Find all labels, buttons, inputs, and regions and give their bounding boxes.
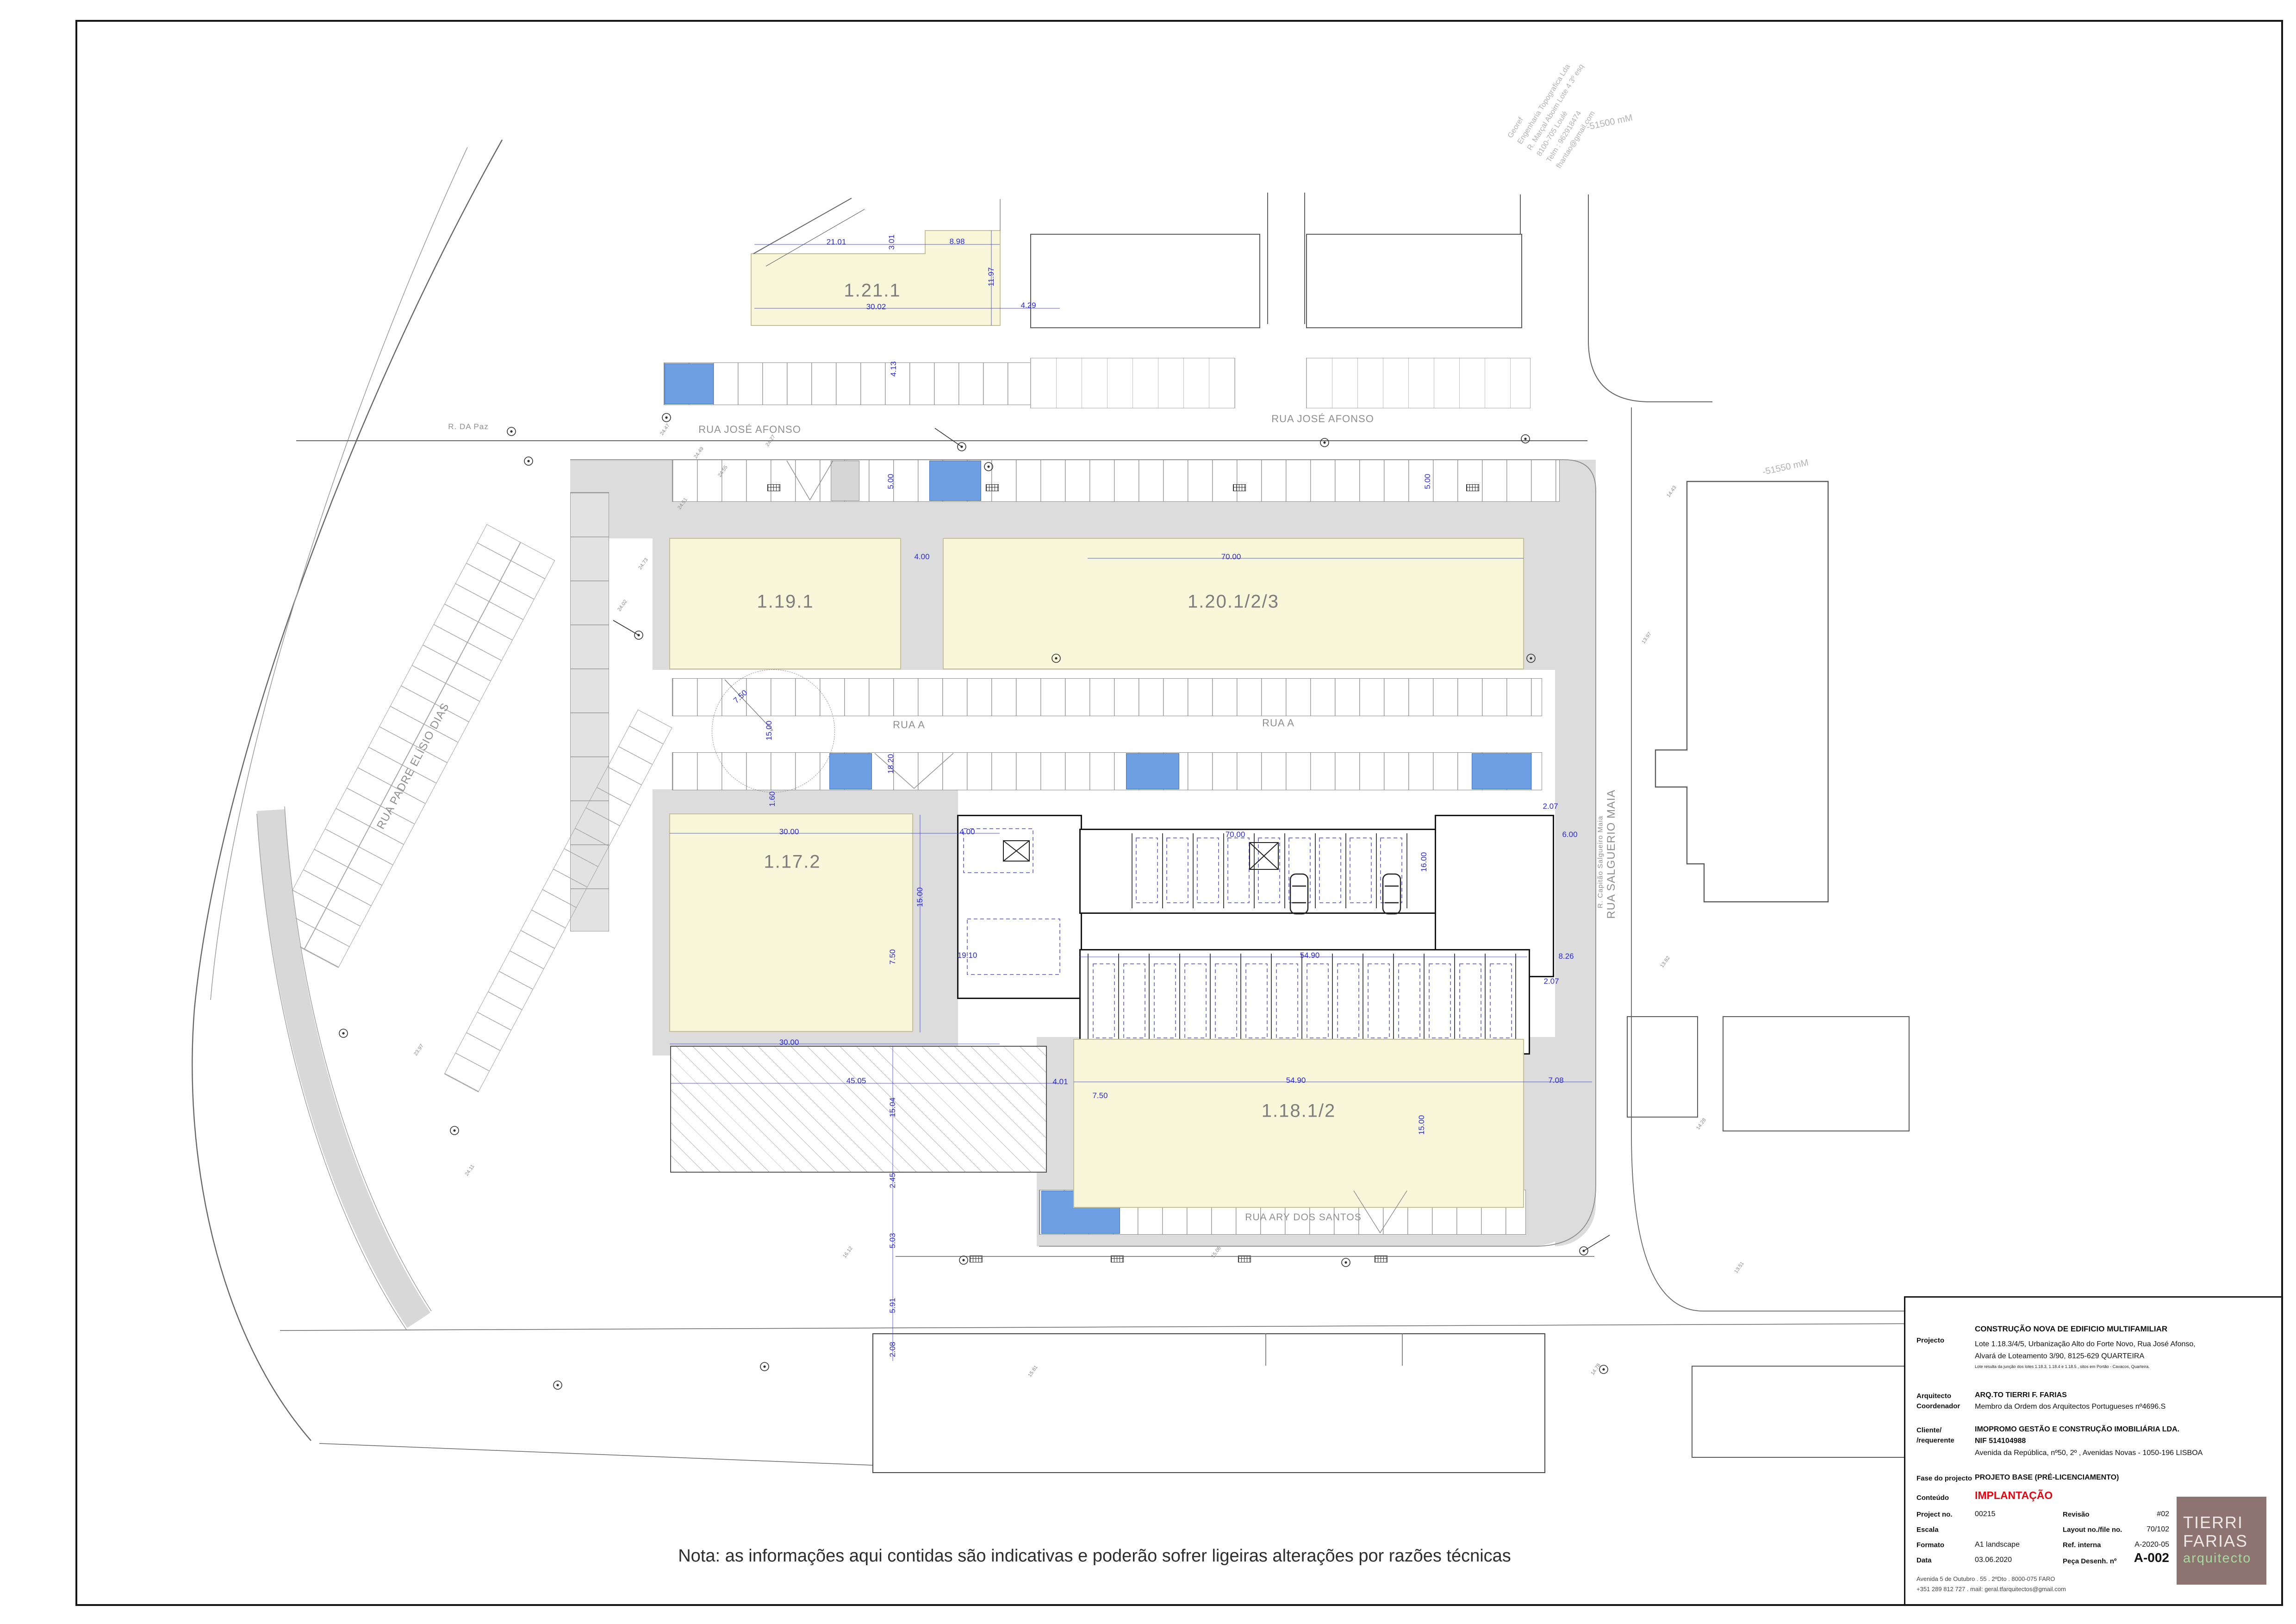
dimension-label: 2.07 <box>1543 977 1559 986</box>
dimension-label: 7.50 <box>1092 1091 1108 1100</box>
paving-left-mid-band <box>653 789 958 1056</box>
dimension-label: 70.00 <box>1221 552 1241 562</box>
curb-grate <box>1233 484 1246 491</box>
drawing-number: A-002 <box>2116 1550 2169 1565</box>
phase-value: PROJETO BASE (PRÉ-LICENCIAMENTO) <box>1975 1474 2119 1482</box>
architect-detail: Membro da Ordem dos Arquitectos Portugue… <box>1975 1403 2165 1411</box>
field-label: Project no. <box>1916 1511 1953 1518</box>
blue-parking-stall <box>829 753 872 789</box>
existing-building <box>1723 1016 1910 1131</box>
field-label: Escala <box>1916 1526 1939 1534</box>
field-label: Layout no./file no. <box>2063 1526 2122 1534</box>
field-value: #02 <box>2128 1510 2169 1518</box>
dimension-label: 2.07 <box>1543 802 1558 811</box>
blue-parking-stall <box>1041 1191 1120 1234</box>
field-value: 03.06.2020 <box>1975 1556 2012 1564</box>
logo-line: arquitecto <box>2183 1551 2266 1566</box>
dimension-label: 5.00 <box>886 474 896 489</box>
project-line1: Lote 1.18.3/4/5, Urbanização Alto do For… <box>1975 1340 2196 1349</box>
dimension-label: 3.01 <box>887 234 896 250</box>
field-value: 70/102 <box>2128 1525 2169 1534</box>
street-label: RUA A <box>1262 717 1294 729</box>
building-west-wing <box>957 815 1082 999</box>
architect-label2: Coordenador <box>1916 1402 1960 1410</box>
blue-parking-stall <box>1472 753 1531 789</box>
dimension-label: 2.08 <box>888 1342 897 1357</box>
disclaimer-note: Nota: as informações aqui contidas são i… <box>629 1546 1560 1566</box>
gray-parking-stall <box>831 461 859 501</box>
stair-tower <box>1448 1052 1483 1094</box>
existing-building <box>1030 234 1260 328</box>
client-label2: /requerente <box>1916 1437 1954 1444</box>
project-small-note: Lote resulta da junção dos lotes 1.18.3,… <box>1975 1364 2150 1369</box>
lot-label: 1.17.2 <box>764 852 821 873</box>
paving-top-band <box>570 501 1596 538</box>
client-nif: NIF 514104988 <box>1975 1437 2026 1445</box>
field-label: Peça Desenh. nº <box>2063 1557 2116 1565</box>
dimension-label: 54.90 <box>1286 1076 1306 1085</box>
dimension-label: 2.45 <box>888 1173 897 1188</box>
dimension-label: 30.00 <box>779 1038 799 1047</box>
dimension-label: 7.08 <box>1548 1076 1563 1085</box>
street-label: RUA ARY DOS SANTOS <box>1245 1212 1361 1223</box>
dimension-label: 15.00 <box>765 721 774 741</box>
office-contact: +351 289 812 727 . mail: geral.tfarquite… <box>1916 1586 2066 1593</box>
field-label: Revisão <box>2063 1511 2090 1518</box>
curb-grate <box>1466 484 1479 491</box>
garage-stall-dividers-north <box>1132 833 1409 908</box>
curb-grate <box>1238 1255 1251 1262</box>
dimension-label: 70.00 <box>1226 830 1245 839</box>
field-label: Formato <box>1916 1541 1944 1549</box>
curb-grate <box>1375 1255 1388 1262</box>
street-label: RUA JOSÉ AFONSO <box>1271 413 1374 425</box>
street-label: RUA SALGUERIO MAIA <box>1605 789 1618 918</box>
parking-area-north-a <box>1030 358 1235 408</box>
curb-grate <box>970 1255 983 1262</box>
office-address: Avenida 5 de Outubro . 55 . 2ºDto . 8000… <box>1916 1575 2055 1582</box>
street-label: R. DA Paz <box>448 422 488 431</box>
dimension-label: 8.98 <box>949 237 964 246</box>
client-address: Avenida da República, nº50, 2º , Avenida… <box>1975 1449 2203 1457</box>
title-block: Projecto CONSTRUÇÃO NOVA DE EDIFICIO MUL… <box>1904 1296 2283 1605</box>
existing-building <box>1306 234 1522 328</box>
content-label: Conteúdo <box>1916 1494 1949 1502</box>
stair-tower <box>1170 1052 1205 1094</box>
architect-label: Arquitecto <box>1916 1392 1951 1400</box>
dimension-label: 5.00 <box>1423 474 1432 489</box>
dimension-label: 18.20 <box>886 754 896 774</box>
existing-building <box>1627 1016 1698 1118</box>
dimension-label: 5.03 <box>888 1233 897 1248</box>
dimension-label: 4.00 <box>959 827 975 837</box>
dimension-label: 1.60 <box>768 791 777 806</box>
blue-parking-stall <box>665 363 714 404</box>
garage-stall-dividers-south <box>1088 954 1523 1049</box>
lot-label: 1.18.1/2 <box>1262 1101 1336 1122</box>
project-title: CONSTRUÇÃO NOVA DE EDIFICIO MULTIFAMILIA… <box>1975 1324 2167 1334</box>
tierri-farias-logo: TIERRI FARIAS arquitecto <box>2177 1497 2266 1585</box>
curb-grate <box>986 484 999 491</box>
dimension-label: 6.00 <box>1562 830 1577 839</box>
dimension-label: 15.04 <box>888 1098 897 1118</box>
dimension-label: 15.00 <box>1417 1115 1426 1135</box>
hatched-reserved-area <box>670 1046 1047 1173</box>
dimension-label: 30.02 <box>866 302 886 312</box>
dimension-label: 11.97 <box>987 267 996 286</box>
parking-row-north-of-rua-jose-afonso <box>664 362 1035 405</box>
client-label: Cliente/ <box>1916 1426 1941 1434</box>
dimension-label: 54.90 <box>1300 951 1320 960</box>
field-value: 00215 <box>1975 1510 1996 1518</box>
dimension-label: 7.50 <box>888 949 897 964</box>
dimension-label: 5.91 <box>888 1298 897 1313</box>
dimension-label: 21.01 <box>827 237 846 247</box>
field-value: A-2020-05 <box>2128 1541 2169 1549</box>
dimension-label: 45.05 <box>846 1076 866 1086</box>
project-line2: Alvará de Loteamento 3/90, 8125-629 QUAR… <box>1975 1352 2144 1361</box>
dimension-label: 4.13 <box>889 361 898 376</box>
dimension-label: 19.10 <box>958 951 977 960</box>
dimension-label: 15.00 <box>915 887 925 907</box>
blue-parking-stall <box>929 461 981 501</box>
street-label: R. Capitão Salgueiro Maia <box>1597 816 1605 908</box>
field-label: Data <box>1916 1556 1932 1564</box>
existing-building-south <box>872 1333 1545 1473</box>
logo-line: TIERRI <box>2183 1513 2266 1532</box>
dimension-label: 8.26 <box>1558 952 1574 961</box>
lot-label: 1.20.1/2/3 <box>1188 592 1279 612</box>
phase-label: Fase do projecto <box>1916 1474 1972 1482</box>
dimension-label: 4.29 <box>1020 301 1036 310</box>
client-name: IMOPROMO GESTÃO E CONSTRUÇÃO IMOBILIÁRIA… <box>1975 1425 2179 1434</box>
curb-grate <box>767 484 780 491</box>
content-value: IMPLANTAÇÃO <box>1975 1489 2053 1502</box>
field-value: A1 landscape <box>1975 1541 2020 1549</box>
dimension-label: 16.00 <box>1419 852 1429 872</box>
lot-label: 1.19.1 <box>757 592 814 612</box>
curb-grate <box>1111 1255 1124 1262</box>
logo-line: FARIAS <box>2183 1532 2266 1550</box>
architect-name: ARQ.TO TIERRI F. FARIAS <box>1975 1391 2067 1399</box>
project-label: Projecto <box>1916 1337 1944 1344</box>
street-label: RUA JOSÉ AFONSO <box>698 424 801 436</box>
blue-parking-stall <box>1126 753 1179 789</box>
dimension-label: 4.01 <box>1052 1077 1068 1087</box>
lot-label: 1.21.1 <box>844 281 901 301</box>
dimension-label: 30.00 <box>779 827 799 837</box>
field-label: Ref. interna <box>2063 1541 2101 1549</box>
dimension-label: 4.00 <box>914 552 929 562</box>
parking-area-north-b <box>1306 358 1531 408</box>
street-label: RUA A <box>893 719 925 731</box>
